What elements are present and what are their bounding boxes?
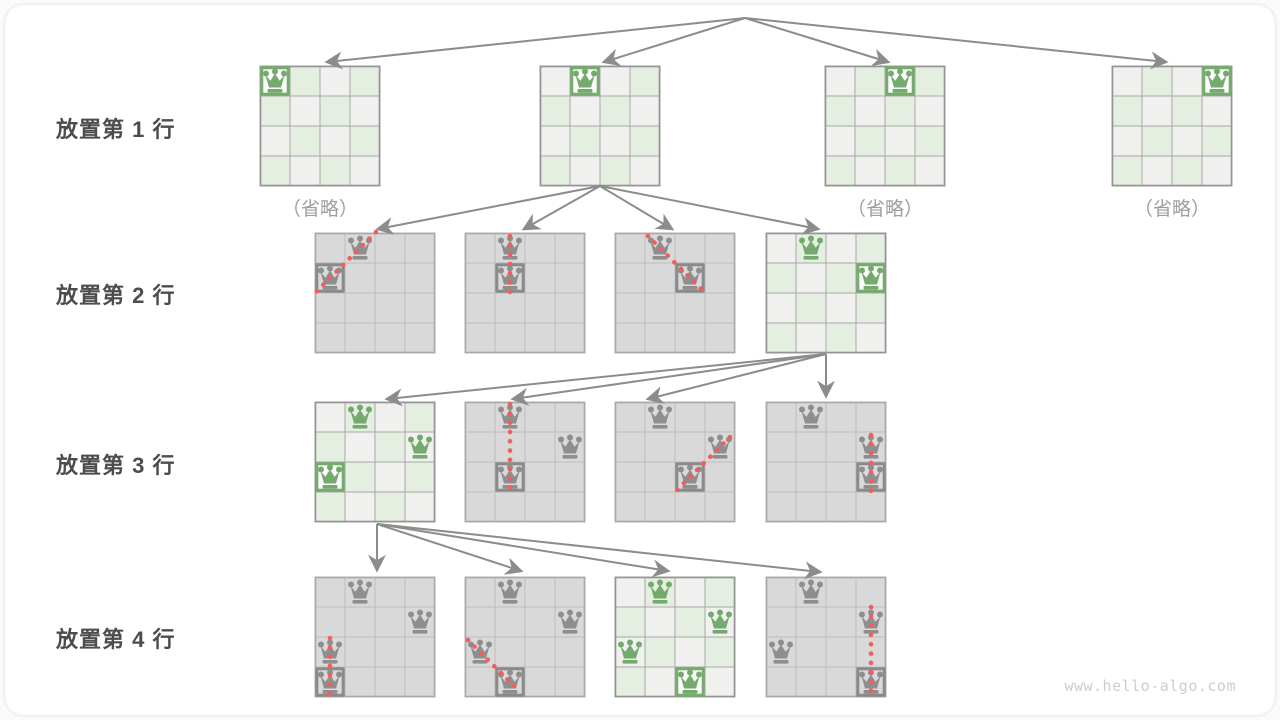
board-cell: [645, 462, 675, 492]
board-cell: [1112, 156, 1142, 186]
board-cell: [525, 402, 555, 432]
board-cell: [705, 667, 735, 697]
board-cell: [290, 66, 320, 96]
board-cell: [345, 323, 375, 353]
board-cell: [465, 432, 495, 462]
board-cell: [570, 156, 600, 186]
board-cell: [375, 233, 405, 263]
board-cell: [855, 96, 885, 126]
board-cell: [856, 402, 886, 432]
board-cell: [1172, 96, 1202, 126]
board-cell: [825, 66, 855, 96]
board-cell: [345, 637, 375, 667]
board-cell: [705, 233, 735, 263]
board-cell: [260, 126, 290, 156]
board-cell: [826, 607, 856, 637]
board-cell: [856, 233, 886, 263]
board-row4-4: [766, 577, 886, 697]
board-cell: [826, 293, 856, 323]
board-cell: [645, 607, 675, 637]
board-cell: [525, 462, 555, 492]
board-cell: [615, 323, 645, 353]
board-row4-1: [315, 577, 435, 697]
board-cell: [350, 96, 380, 126]
board-cell: [540, 66, 570, 96]
board-cell: [345, 462, 375, 492]
board-row3-1: [315, 402, 435, 522]
board-cell: [675, 402, 705, 432]
board-cell: [290, 126, 320, 156]
board-cell: [615, 577, 645, 607]
board-cell: [1142, 66, 1172, 96]
board-cell: [675, 293, 705, 323]
board-cell: [855, 66, 885, 96]
board-cell: [1172, 156, 1202, 186]
board-cell: [645, 323, 675, 353]
board-cell: [1142, 156, 1172, 186]
board-cell: [825, 96, 855, 126]
board-cell: [555, 323, 585, 353]
board-cell: [555, 637, 585, 667]
board-cell: [675, 637, 705, 667]
watermark: www.hello-algo.com: [1064, 677, 1236, 695]
board-cell: [465, 492, 495, 522]
board-cell: [525, 293, 555, 323]
board-cell: [540, 156, 570, 186]
board-cell: [826, 577, 856, 607]
tree-arrow: [513, 354, 826, 399]
board-cell: [645, 667, 675, 697]
board-cell: [796, 263, 826, 293]
board-cell: [600, 66, 630, 96]
board-cell: [405, 233, 435, 263]
board-cell: [705, 323, 735, 353]
board-cell: [525, 233, 555, 263]
board-row3-4: [766, 402, 886, 522]
board-cell: [766, 492, 796, 522]
board-cell: [675, 432, 705, 462]
board-cell: [260, 156, 290, 186]
board-cell: [540, 126, 570, 156]
board-cell: [675, 492, 705, 522]
board-cell: [405, 402, 435, 432]
board-cell: [615, 263, 645, 293]
row-label-2: 放置第 2 行: [56, 278, 206, 310]
board-cell: [405, 667, 435, 697]
board-cell: [315, 233, 345, 263]
board-cell: [826, 432, 856, 462]
board-cell: [345, 607, 375, 637]
board-cell: [615, 607, 645, 637]
board-cell: [600, 96, 630, 126]
board-cell: [630, 66, 660, 96]
board-cell: [630, 96, 660, 126]
board-cell: [915, 126, 945, 156]
board-cell: [315, 293, 345, 323]
board-cell: [405, 293, 435, 323]
board-cell: [766, 402, 796, 432]
board-cell: [675, 233, 705, 263]
board-cell: [675, 607, 705, 637]
row-label-4: 放置第 4 行: [56, 622, 206, 654]
board-cell: [465, 462, 495, 492]
diagram-canvas: [0, 0, 1280, 720]
board-cell: [570, 126, 600, 156]
board-cell: [465, 293, 495, 323]
board-cell: [1202, 96, 1232, 126]
board-cell: [826, 233, 856, 263]
board-cell: [615, 667, 645, 697]
board-row3-2: [465, 402, 585, 522]
board-cell: [405, 492, 435, 522]
board-cell: [855, 126, 885, 156]
board-cell: [375, 263, 405, 293]
omitted-caption: （省略）: [805, 194, 965, 221]
board-cell: [525, 492, 555, 522]
board-cell: [645, 293, 675, 323]
board-cell: [856, 577, 886, 607]
board-cell: [615, 432, 645, 462]
tree-arrow: [327, 18, 745, 62]
board-cell: [826, 462, 856, 492]
board-row2-2: [465, 233, 585, 353]
row-label-3: 放置第 3 行: [56, 448, 206, 480]
board-cell: [645, 432, 675, 462]
board-cell: [315, 402, 345, 432]
board-cell: [766, 462, 796, 492]
board-cell: [555, 293, 585, 323]
board-cell: [1112, 126, 1142, 156]
board-cell: [705, 293, 735, 323]
board-cell: [465, 667, 495, 697]
board-cell: [350, 126, 380, 156]
board-cell: [290, 96, 320, 126]
board-cell: [630, 126, 660, 156]
board-cell: [375, 492, 405, 522]
board-cell: [465, 233, 495, 263]
board-cell: [555, 263, 585, 293]
board-cell: [1172, 126, 1202, 156]
board-cell: [705, 637, 735, 667]
board-cell: [796, 293, 826, 323]
board-cell: [555, 233, 585, 263]
board-cell: [375, 637, 405, 667]
tree-arrow: [387, 354, 826, 399]
board-cell: [375, 577, 405, 607]
board-cell: [375, 432, 405, 462]
board-cell: [796, 607, 826, 637]
board-cell: [856, 323, 886, 353]
board-cell: [615, 402, 645, 432]
board-cell: [766, 432, 796, 462]
board-cell: [320, 156, 350, 186]
board-cell: [766, 293, 796, 323]
board-cell: [345, 293, 375, 323]
board-cell: [405, 462, 435, 492]
board-cell: [705, 402, 735, 432]
board-cell: [345, 432, 375, 462]
board-cell: [375, 607, 405, 637]
board-cell: [766, 607, 796, 637]
board-cell: [375, 667, 405, 697]
board-row4-3: [615, 577, 735, 697]
board-cell: [350, 66, 380, 96]
board-cell: [915, 96, 945, 126]
board-cell: [555, 402, 585, 432]
board-cell: [885, 126, 915, 156]
board-cell: [615, 492, 645, 522]
board-cell: [825, 126, 855, 156]
board-cell: [645, 492, 675, 522]
board-cell: [315, 323, 345, 353]
board-cell: [320, 66, 350, 96]
board-cell: [345, 667, 375, 697]
board-cell: [826, 492, 856, 522]
board-cell: [826, 402, 856, 432]
board-cell: [766, 323, 796, 353]
board-cell: [375, 462, 405, 492]
board-cell: [825, 156, 855, 186]
board-cell: [600, 156, 630, 186]
board-row1-2: [540, 66, 660, 186]
board-cell: [570, 96, 600, 126]
board-cell: [290, 156, 320, 186]
board-cell: [856, 293, 886, 323]
board-row3-3: [615, 402, 735, 522]
board-cell: [766, 577, 796, 607]
board-cell: [315, 492, 345, 522]
board-cell: [615, 462, 645, 492]
board-cell: [465, 402, 495, 432]
tree-arrow: [377, 524, 668, 571]
board-cell: [796, 323, 826, 353]
board-cell: [525, 263, 555, 293]
tree-arrow: [600, 186, 818, 229]
board-cell: [375, 323, 405, 353]
tree-arrow: [378, 186, 600, 229]
board-cell: [630, 156, 660, 186]
board-cell: [555, 462, 585, 492]
board-cell: [1172, 66, 1202, 96]
board-cell: [705, 492, 735, 522]
board-cell: [525, 432, 555, 462]
board-cell: [766, 263, 796, 293]
board-cell: [375, 402, 405, 432]
board-cell: [615, 233, 645, 263]
board-cell: [615, 293, 645, 323]
tree-arrow: [377, 524, 820, 572]
board-cell: [1142, 126, 1172, 156]
board-cell: [796, 492, 826, 522]
board-cell: [856, 492, 886, 522]
board-cell: [495, 492, 525, 522]
board-cell: [525, 637, 555, 667]
board-cell: [645, 263, 675, 293]
board-cell: [525, 607, 555, 637]
omitted-caption: （省略）: [1092, 194, 1252, 221]
board-cell: [766, 667, 796, 697]
board-cell: [525, 577, 555, 607]
board-cell: [915, 66, 945, 96]
board-cell: [525, 323, 555, 353]
row-label-1: 放置第 1 行: [56, 112, 206, 144]
board-cell: [675, 577, 705, 607]
board-cell: [555, 667, 585, 697]
board-cell: [315, 577, 345, 607]
board-cell: [645, 637, 675, 667]
board-cell: [345, 492, 375, 522]
board-cell: [375, 293, 405, 323]
board-cell: [260, 96, 290, 126]
board-cell: [705, 263, 735, 293]
board-row1-4: [1112, 66, 1232, 186]
board-cell: [855, 156, 885, 186]
board-cell: [796, 462, 826, 492]
board-cell: [465, 577, 495, 607]
board-cell: [1202, 156, 1232, 186]
board-cell: [796, 637, 826, 667]
board-cell: [675, 323, 705, 353]
board-cell: [826, 667, 856, 697]
board-cell: [1112, 66, 1142, 96]
board-cell: [600, 126, 630, 156]
tree-arrow: [745, 18, 1166, 62]
omitted-caption: （省略）: [240, 194, 400, 221]
board-cell: [320, 126, 350, 156]
board-cell: [1202, 126, 1232, 156]
board-cell: [826, 637, 856, 667]
board-cell: [826, 323, 856, 353]
board-cell: [405, 323, 435, 353]
board-cell: [350, 156, 380, 186]
board-cell: [915, 156, 945, 186]
board-cell: [465, 323, 495, 353]
board-cell: [525, 667, 555, 697]
board-cell: [705, 462, 735, 492]
board-cell: [796, 432, 826, 462]
board-cell: [766, 233, 796, 263]
board-cell: [826, 263, 856, 293]
board-cell: [495, 637, 525, 667]
board-row2-4: [766, 233, 886, 353]
board-cell: [555, 577, 585, 607]
board-cell: [796, 667, 826, 697]
board-cell: [405, 263, 435, 293]
board-cell: [465, 263, 495, 293]
board-cell: [495, 607, 525, 637]
board-cell: [540, 96, 570, 126]
board-cell: [885, 96, 915, 126]
board-cell: [495, 323, 525, 353]
board-cell: [555, 492, 585, 522]
board-cell: [1142, 96, 1172, 126]
board-row2-3: [615, 233, 735, 353]
board-row4-2: [465, 577, 585, 697]
board-cell: [1112, 96, 1142, 126]
board-cell: [320, 96, 350, 126]
board-cell: [885, 156, 915, 186]
board-cell: [315, 432, 345, 462]
board-cell: [345, 263, 375, 293]
board-row1-1: [260, 66, 380, 186]
board-cell: [315, 607, 345, 637]
board-cell: [705, 577, 735, 607]
board-cell: [495, 293, 525, 323]
board-cell: [465, 607, 495, 637]
board-row2-1: [315, 233, 435, 353]
board-row1-3: [825, 66, 945, 186]
board-cell: [405, 577, 435, 607]
board-cell: [405, 637, 435, 667]
